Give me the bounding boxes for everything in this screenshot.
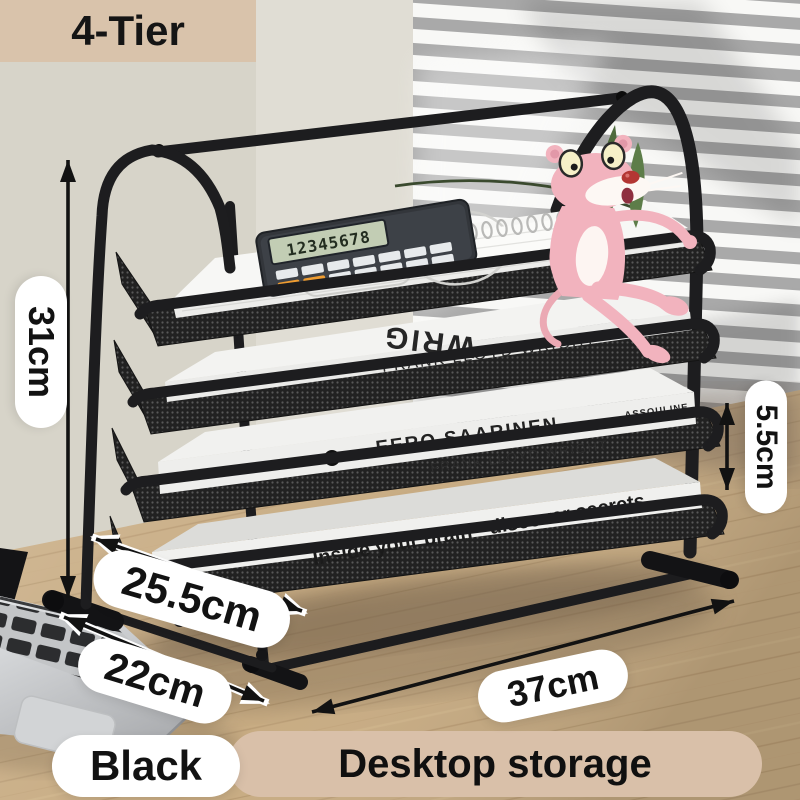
dimension-label-layer-height: 5.5cm (745, 380, 787, 513)
dimension-label-height: 31cm (15, 276, 67, 428)
tier-badge: 4-Tier (0, 0, 256, 62)
color-badge: Black (52, 735, 240, 797)
product-image: 12345678 WRIG FRANK LLOYD WRIGHT (0, 0, 800, 800)
category-banner: Desktop storage (228, 731, 762, 797)
